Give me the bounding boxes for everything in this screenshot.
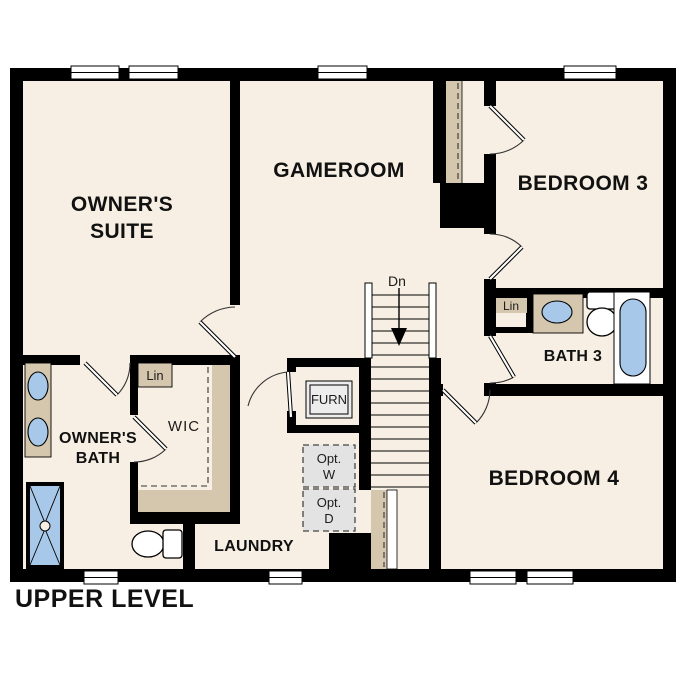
laundry-label: LAUNDRY [214,538,294,555]
stair-rail-right [429,283,436,358]
toilet-icon [587,292,618,336]
owners-suite-label-line2: SUITE [90,220,154,243]
bath3-vanity [533,294,583,333]
owners-bath-label-line2: BATH [76,450,120,467]
sink-icon [28,372,48,400]
bath3-linen-label: Lin [503,299,519,313]
owners-bath-label-line1: OWNER'S [59,430,137,447]
bedroom3-label: BEDROOM 3 [518,172,649,195]
stairs-dn-label: Dn [388,273,406,289]
wic-linen-label: Lin [146,368,163,383]
optional-washer-label-line1: Opt. [317,451,342,466]
sink-icon [28,418,48,446]
level-title: UPPER LEVEL [15,585,194,613]
shower-icon [26,482,64,569]
optional-dryer-label-line1: Opt. [317,495,342,510]
floor-plan-drawing: OWNER'S SUITE GAMEROOM BEDROOM 3 BEDROOM… [0,0,687,687]
optional-dryer-label-line2: D [324,511,333,526]
bedroom4-label: BEDROOM 4 [489,467,620,490]
wic-label: WIC [168,418,200,435]
owners-bath-vanity [25,363,51,457]
stair-rail-left [365,283,372,358]
sink-icon [542,301,572,323]
toilet-icon [132,530,182,558]
gameroom-label: GAMEROOM [273,159,405,182]
bath3-label: BATH 3 [544,348,602,365]
owners-suite-label-line1: OWNER'S [71,193,173,216]
bathtub-icon [614,292,650,384]
floor-plan-page: OWNER'S SUITE GAMEROOM BEDROOM 3 BEDROOM… [0,0,687,687]
furnace-label: FURN [311,392,347,407]
optional-washer-label-line2: W [323,467,336,482]
